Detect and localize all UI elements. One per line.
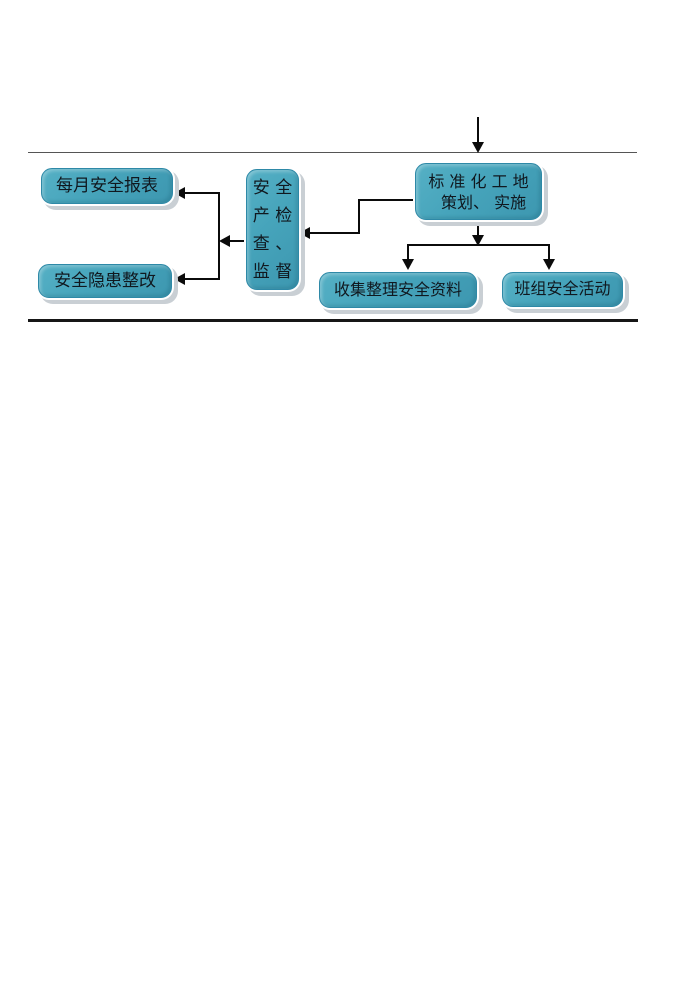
connector-split-horizontal <box>407 244 550 246</box>
node-monthly-safety-report: 每月安全报表 <box>41 168 173 204</box>
connector-plan-to-inspect-h1 <box>359 199 416 201</box>
safety-flowchart: 标 准 化 工 地 策划、 实施 安 全 产 检 查 、 监 督 每月安全报表 … <box>0 0 700 990</box>
connector-branch-to-monthly <box>184 192 220 194</box>
bottom-divider-line <box>28 319 638 322</box>
arrowhead-left-into-hazard <box>174 273 185 285</box>
arrowhead-left-at-junction <box>219 235 230 247</box>
node-standardized-site-planning: 标 准 化 工 地 策划、 实施 <box>415 163 542 220</box>
node-label: 收集整理安全资料 <box>334 280 462 301</box>
node-label: 班组安全活动 <box>514 279 610 300</box>
node-hazard-rectification: 安全隐患整改 <box>38 264 172 298</box>
node-label: 安 全 产 检 查 、 监 督 <box>253 174 292 286</box>
connector-inspect-to-junction <box>230 240 246 242</box>
arrowhead-down-top-entry <box>472 142 484 153</box>
node-label: 每月安全报表 <box>56 175 158 197</box>
node-team-safety-activity: 班组安全活动 <box>502 272 623 307</box>
node-safety-production-inspection: 安 全 产 检 查 、 监 督 <box>246 169 299 290</box>
arrowhead-down-into-collect <box>402 259 414 270</box>
arrowhead-down-into-team <box>543 259 555 270</box>
arrowhead-left-into-monthly <box>174 187 185 199</box>
top-divider-line <box>28 152 637 153</box>
node-label: 安全隐患整改 <box>54 270 156 292</box>
connector-drop-to-collect <box>407 246 409 260</box>
connector-plan-to-inspect-v <box>358 199 360 233</box>
node-label: 标 准 化 工 地 策划、 实施 <box>428 171 528 213</box>
connector-drop-to-team <box>548 246 550 260</box>
connector-plan-to-inspect-h2 <box>309 232 360 234</box>
arrowhead-left-into-inspect <box>299 227 310 239</box>
connector-junction-vertical <box>218 192 220 280</box>
node-collect-safety-data: 收集整理安全资料 <box>319 272 477 308</box>
connector-branch-to-hazard <box>184 278 220 280</box>
